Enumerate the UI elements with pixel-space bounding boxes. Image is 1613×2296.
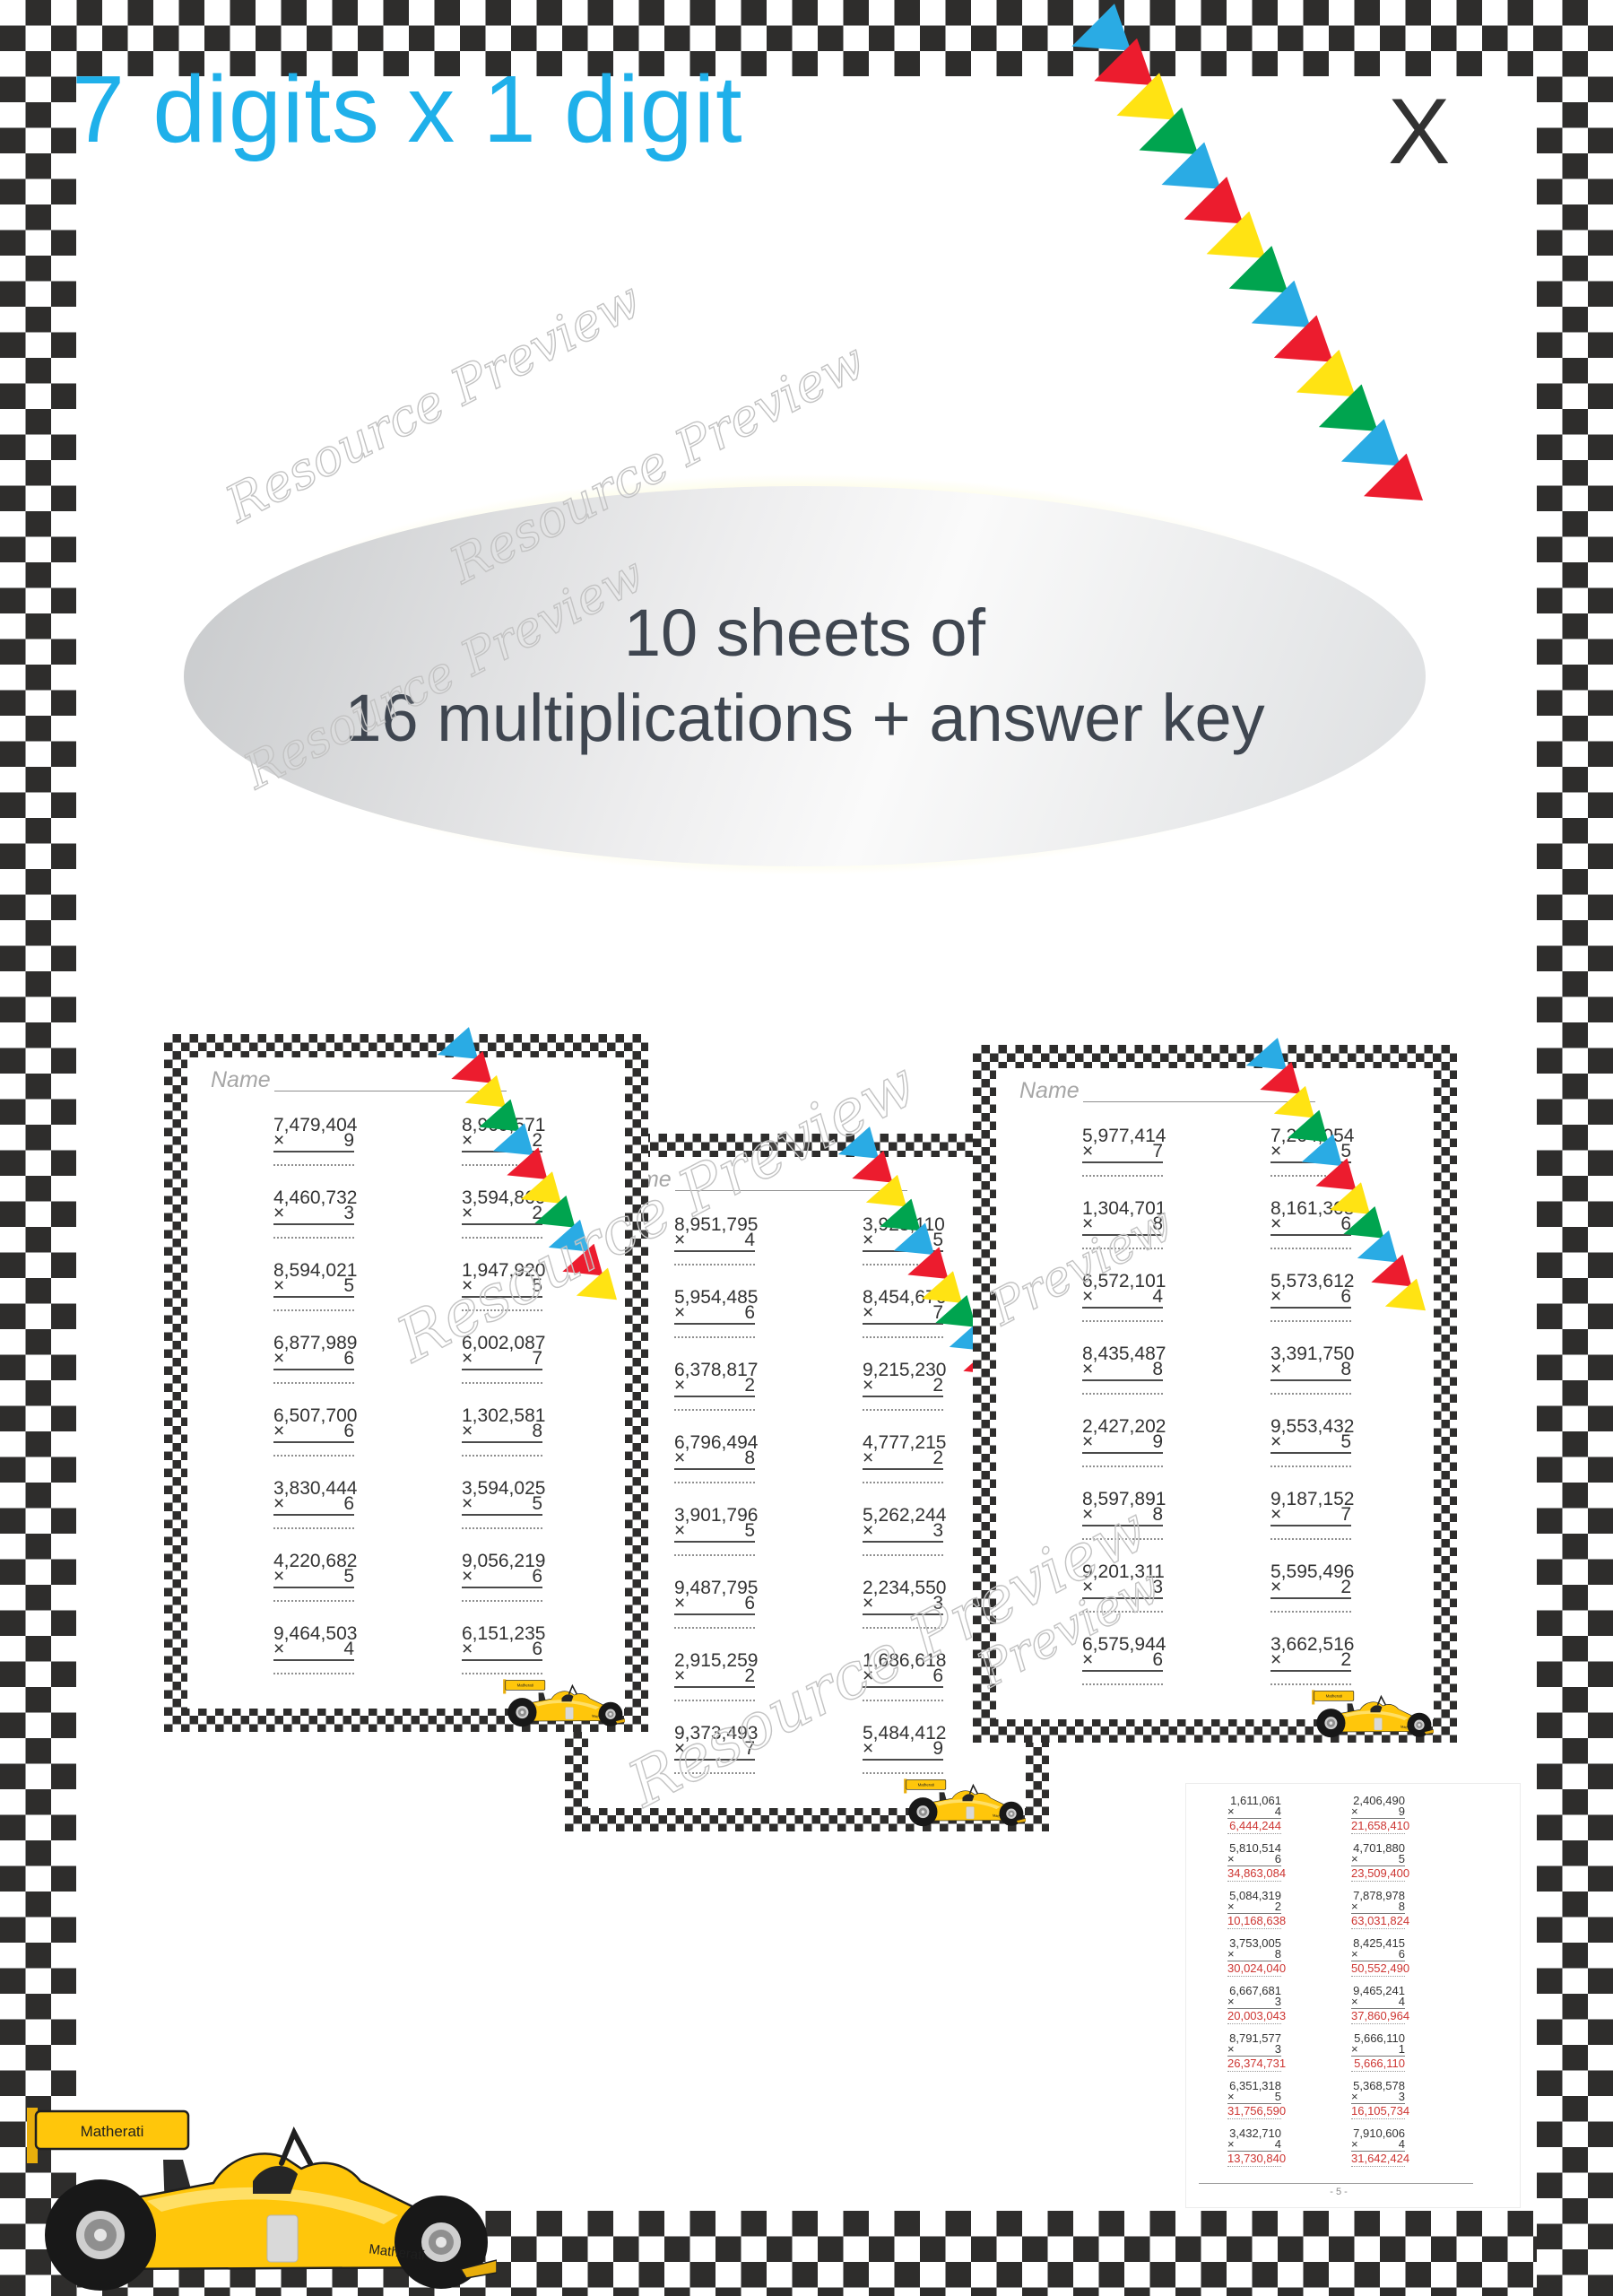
multiplier: 6	[932, 1669, 943, 1683]
multiply-sign: ×	[273, 1279, 284, 1293]
multiplier-row: × 6	[1082, 1653, 1163, 1672]
page-number: - 5 -	[1186, 2187, 1491, 2197]
multiply-sign: ×	[1351, 2092, 1358, 2102]
multiplier: 2	[744, 1378, 755, 1393]
multiplication-problem: 1,947,920 × 5	[462, 1262, 542, 1335]
answer-line	[863, 1554, 943, 1556]
multiplier-row: × 3	[1082, 1580, 1163, 1599]
answer-value: 37,860,964	[1351, 2009, 1405, 2024]
multiplier: 5	[343, 1279, 354, 1293]
multiplier: 6	[744, 1596, 755, 1611]
answer-value: 6,444,244	[1227, 1819, 1281, 1834]
multiplicand: 4,460,732	[273, 1189, 354, 1206]
multiplier-row: × 8	[1082, 1362, 1163, 1381]
multiply-sign: ×	[1351, 1901, 1358, 1912]
multiply-sign: ×	[1082, 1217, 1093, 1231]
multiplier: 6	[343, 1497, 354, 1511]
multiplier-row: × 7	[1270, 1508, 1351, 1526]
answered-problem: 5,810,514 × 6 34,863,084	[1227, 1842, 1281, 1890]
multiply-sign: ×	[1082, 1653, 1093, 1667]
multiplicand: 4,777,215	[863, 1434, 943, 1451]
multiplicand: 9,553,432	[1270, 1418, 1351, 1435]
multiply-sign: ×	[674, 1596, 685, 1611]
answer-line	[1082, 1538, 1163, 1540]
answer-value: 5,666,110	[1351, 2057, 1405, 2072]
multiplication-problem: 5,595,496 × 2	[1270, 1563, 1351, 1636]
answer-value: 10,168,638	[1227, 1914, 1281, 1929]
answer-line	[1082, 1248, 1163, 1249]
multiplicand: 2,427,202	[1082, 1418, 1163, 1435]
multiplier: 2	[1275, 1901, 1281, 1912]
multiplication-problem: 5,262,244 × 3	[863, 1507, 943, 1579]
multiplicand: 6,796,494	[674, 1434, 755, 1451]
answer-value: 63,031,824	[1351, 1914, 1405, 1929]
multiply-sign: ×	[1351, 2139, 1358, 2150]
multiplication-problem: 3,391,750 × 8	[1270, 1345, 1351, 1418]
multiplication-problem: 2,427,202 × 9	[1082, 1418, 1163, 1491]
multiplication-problem: 9,187,152 × 7	[1270, 1491, 1351, 1563]
multiplier: 9	[343, 1134, 354, 1148]
multiply-sign: ×	[462, 1497, 473, 1511]
multiplier: 4	[1152, 1290, 1163, 1304]
answer-line	[1270, 1611, 1351, 1613]
multiplicand: 5,595,496	[1270, 1563, 1351, 1580]
answer-line	[674, 1772, 755, 1774]
answer-value: 16,105,734	[1351, 2104, 1405, 2119]
multiplier: 6	[1399, 1949, 1405, 1960]
multiply-sign: ×	[273, 1206, 284, 1221]
multiplier: 6	[532, 1570, 542, 1584]
multiplicand: 5,262,244	[863, 1507, 943, 1524]
multiplication-problem: 6,796,494 × 8	[674, 1434, 755, 1507]
multiply-sign: ×	[1270, 1580, 1281, 1595]
multiplicand: 6,002,087	[462, 1335, 542, 1352]
multiply-sign: ×	[1082, 1362, 1093, 1377]
multiplicand: 6,667,681	[1227, 1985, 1281, 1996]
multiplicand: 6,575,944	[1082, 1636, 1163, 1653]
multiplicand: 9,373,493	[674, 1725, 755, 1742]
multiplicand: 7,479,404	[273, 1117, 354, 1134]
answer-line	[674, 1409, 755, 1411]
worksheet-page: Name 5,977,414 × 7 7,264,054	[996, 1068, 1434, 1719]
answered-problem: 7,878,978 × 8 63,031,824	[1351, 1890, 1405, 1937]
multiplier: 5	[744, 1524, 755, 1538]
multiply-sign: ×	[674, 1233, 685, 1248]
multiplier-row: × 2	[1270, 1580, 1351, 1599]
multiply-sign: ×	[1227, 2092, 1235, 2102]
multiplier-row: × 2	[863, 1451, 943, 1470]
answer-value: 13,730,840	[1227, 2152, 1281, 2167]
multiplication-problem: 6,507,700 × 6	[273, 1407, 354, 1480]
multiplication-problem: 8,951,795 × 4	[674, 1216, 755, 1289]
multiplication-problem: 9,464,503 × 4	[273, 1625, 354, 1698]
multiplicand: 6,877,989	[273, 1335, 354, 1352]
multiplier-row: × 6	[273, 1352, 354, 1370]
multiply-sign: ×	[1351, 1949, 1358, 1960]
multiplicand: 5,368,578	[1351, 2080, 1405, 2092]
multiply-sign: ×	[674, 1306, 685, 1320]
race-car-illustration	[13, 2090, 497, 2296]
answer-line	[674, 1554, 755, 1556]
multiplier: 8	[1399, 1901, 1405, 1912]
multiplication-problem: 8,435,487 × 8	[1082, 1345, 1163, 1418]
multiplication-problem: 3,830,444 × 6	[273, 1480, 354, 1552]
answer-key-grid: 1,611,061 × 4 6,444,244 2,406,490 × 9 21…	[1227, 1795, 1405, 2175]
answer-line	[674, 1336, 755, 1338]
multiply-sign: ×	[674, 1378, 685, 1393]
answer-line	[462, 1600, 542, 1602]
multiplier: 4	[1399, 2139, 1405, 2150]
answered-problem: 7,910,606 × 4 31,642,424	[1351, 2127, 1405, 2175]
multiplier-row: × 5	[273, 1279, 354, 1298]
multiplier: 8	[744, 1451, 755, 1465]
race-car-icon	[900, 1774, 1026, 1828]
multiply-sign: ×	[863, 1669, 873, 1683]
multiplication-problem: 4,220,682 × 5	[273, 1552, 354, 1625]
name-label: Name	[211, 1068, 271, 1091]
multiplier: 5	[532, 1497, 542, 1511]
multiply-sign: ×	[863, 1306, 873, 1320]
multiplier: 2	[1340, 1653, 1351, 1667]
multiplication-problem: 5,954,485 × 6	[674, 1289, 755, 1361]
answer-line	[863, 1627, 943, 1629]
answer-line	[674, 1264, 755, 1265]
multiply-sign: ×	[273, 1134, 284, 1148]
multiplier: 4	[1275, 2139, 1281, 2150]
answer-value: 26,374,731	[1227, 2057, 1281, 2072]
multiply-sign: ×	[273, 1570, 284, 1584]
multiply-sign: ×	[674, 1524, 685, 1538]
multiplicand: 4,701,880	[1351, 1842, 1405, 1854]
multiplier: 5	[532, 1279, 542, 1293]
multiplication-problem: 9,553,432 × 5	[1270, 1418, 1351, 1491]
badge-oval: 10 sheets of 16 multiplications + answer…	[184, 486, 1426, 866]
multiplier-row: × 6	[1351, 1949, 1405, 1961]
multiplier: 8	[1152, 1508, 1163, 1522]
multiplicand: 1,947,920	[462, 1262, 542, 1279]
multiplier-row: × 7	[462, 1352, 542, 1370]
answer-line	[1082, 1683, 1163, 1685]
answer-line	[273, 1309, 354, 1311]
worksheet-preview-3: Name 5,977,414 × 7 7,264,054	[973, 1045, 1457, 1743]
multiplier: 5	[1275, 2092, 1281, 2102]
multiplier: 5	[343, 1570, 354, 1584]
multiplier: 4	[744, 1233, 755, 1248]
multiply-sign: ×	[273, 1642, 284, 1657]
multiplier-row: × 6	[674, 1596, 755, 1615]
multiplier: 2	[932, 1378, 943, 1393]
answered-problem: 3,753,005 × 8 30,024,040	[1227, 1937, 1281, 1985]
answer-line	[273, 1455, 354, 1457]
multiplier-row: × 6	[273, 1497, 354, 1516]
multiplier: 8	[1340, 1362, 1351, 1377]
multiplication-problem: 7,479,404 × 9	[273, 1117, 354, 1189]
multiplier-row: × 4	[1351, 2139, 1405, 2152]
multiplicand: 7,910,606	[1351, 2127, 1405, 2139]
multiplicand: 3,830,444	[273, 1480, 354, 1497]
multiplier-row: × 3	[863, 1596, 943, 1615]
answer-line	[863, 1336, 943, 1338]
answer-line	[462, 1382, 542, 1384]
multiplication-problem: 2,234,550 × 3	[863, 1579, 943, 1652]
multiplication-problem: 6,572,101 × 4	[1082, 1273, 1163, 1345]
multiplicand: 8,791,577	[1227, 2032, 1281, 2044]
answer-value: 23,509,400	[1351, 1866, 1405, 1882]
multiply-sign: ×	[863, 1233, 873, 1248]
answer-line	[273, 1673, 354, 1674]
answer-line	[863, 1409, 943, 1411]
multiplier-row: × 6	[674, 1306, 755, 1325]
multiplier-row: × 5	[1351, 1854, 1405, 1866]
multiply-sign: ×	[1227, 1996, 1235, 2007]
multiplicand: 3,901,796	[674, 1507, 755, 1524]
multiplier: 6	[744, 1306, 755, 1320]
multiplier: 1	[1399, 2044, 1405, 2055]
multiplier-row: × 7	[674, 1742, 755, 1761]
multiply-sign: ×	[1270, 1508, 1281, 1522]
multiply-sign: ×	[1270, 1435, 1281, 1449]
answer-line	[273, 1527, 354, 1529]
multiply-sign: ×	[1270, 1217, 1281, 1231]
race-car-icon	[1308, 1685, 1434, 1739]
multiplier: 5	[1399, 1854, 1405, 1865]
multiplier-row: × 3	[1227, 1996, 1281, 2009]
multiplication-problem: 4,777,215 × 2	[863, 1434, 943, 1507]
answer-line	[1270, 1248, 1351, 1249]
answer-line	[1082, 1465, 1163, 1467]
multiply-sign: ×	[462, 1134, 473, 1148]
answer-line	[1082, 1320, 1163, 1322]
answer-line	[674, 1482, 755, 1483]
multiplicand: 2,234,550	[863, 1579, 943, 1596]
multiply-sign: ×	[1227, 1949, 1235, 1960]
answer-line	[462, 1527, 542, 1529]
badge-line-1: 10 sheets of	[624, 591, 985, 676]
answer-value: 20,003,043	[1227, 2009, 1281, 2024]
multiplication-problem: 5,977,414 × 7	[1082, 1127, 1163, 1200]
worksheet-page: Name 7,479,404 × 9 8,969,571	[187, 1057, 625, 1709]
multiply-sign: ×	[273, 1497, 284, 1511]
race-car-icon	[499, 1674, 625, 1728]
multiplicand: 9,215,230	[863, 1361, 943, 1378]
multiplier: 3	[1399, 2092, 1405, 2102]
multiplier: 6	[1340, 1290, 1351, 1304]
multiplier: 9	[932, 1742, 943, 1756]
multiplier-row: × 6	[462, 1642, 542, 1661]
multiply-sign: ×	[1227, 2044, 1235, 2055]
multiplicand: 9,487,795	[674, 1579, 755, 1596]
multiply-sign: ×	[1227, 1854, 1235, 1865]
multiplication-problem: 8,594,021 × 5	[273, 1262, 354, 1335]
multiplicand: 1,686,618	[863, 1652, 943, 1669]
multiply-sign: ×	[462, 1352, 473, 1366]
answer-value: 21,658,410	[1351, 1819, 1405, 1834]
problem-grid: 5,977,414 × 7 7,264,054 × 5	[1082, 1127, 1351, 1709]
multiplier-row: × 2	[863, 1378, 943, 1397]
answer-line	[462, 1237, 542, 1239]
multiplier: 3	[1275, 1996, 1281, 2007]
multiplicand: 2,406,490	[1351, 1795, 1405, 1806]
answer-line	[674, 1627, 755, 1629]
multiplicand: 8,951,795	[674, 1216, 755, 1233]
multiply-sign: ×	[1270, 1144, 1281, 1159]
answered-problem: 8,791,577 × 3 26,374,731	[1227, 2032, 1281, 2080]
multiply-sign: ×	[462, 1642, 473, 1657]
multiplicand: 8,435,487	[1082, 1345, 1163, 1362]
multiplier-row: × 2	[674, 1669, 755, 1688]
multiplicand: 4,220,682	[273, 1552, 354, 1570]
multiplier: 3	[932, 1596, 943, 1611]
answer-line	[462, 1455, 542, 1457]
multiply-sign: ×	[1351, 1996, 1358, 2007]
answered-problem: 2,406,490 × 9 21,658,410	[1351, 1795, 1405, 1842]
answer-line	[273, 1382, 354, 1384]
multiplicand: 8,597,891	[1082, 1491, 1163, 1508]
multiplier-row: × 4	[1351, 1996, 1405, 2009]
answer-key-preview: 1,611,061 × 4 6,444,244 2,406,490 × 9 21…	[1185, 1783, 1521, 2208]
worksheet-preview-poster: 7 digits x 1 digit X 10 sheets of 16 mul…	[0, 0, 1613, 2296]
corner-letter-x: X	[1388, 79, 1450, 186]
multiplication-problem: 6,002,087 × 7	[462, 1335, 542, 1407]
worksheet-page: Name 8,951,795 × 4 3,923,110	[588, 1157, 1026, 1808]
multiplicand: 5,977,414	[1082, 1127, 1163, 1144]
multiplier: 8	[1275, 1949, 1281, 1960]
multiplicand: 6,378,817	[674, 1361, 755, 1378]
multiplier: 6	[1275, 1854, 1281, 1865]
multiply-sign: ×	[1227, 1901, 1235, 1912]
multiplicand: 3,594,025	[462, 1480, 542, 1497]
problem-grid: 7,479,404 × 9 8,969,571 × 2	[273, 1117, 542, 1698]
multiplier: 8	[1152, 1362, 1163, 1377]
multiply-sign: ×	[1082, 1508, 1093, 1522]
answer-line	[1082, 1611, 1163, 1613]
answered-problem: 4,701,880 × 5 23,509,400	[1351, 1842, 1405, 1890]
multiplicand: 9,187,152	[1270, 1491, 1351, 1508]
answer-value: 50,552,490	[1351, 1961, 1405, 1977]
multiplier-row: × 5	[462, 1497, 542, 1516]
multiplier-row: × 5	[273, 1570, 354, 1588]
multiplier-row: × 5	[674, 1524, 755, 1543]
multiplication-problem: 9,201,311 × 3	[1082, 1563, 1163, 1636]
multiply-sign: ×	[1227, 1806, 1235, 1817]
multiplication-problem: 8,597,891 × 8	[1082, 1491, 1163, 1563]
multiplier: 8	[532, 1424, 542, 1439]
answer-line	[1270, 1320, 1351, 1322]
multiplier: 7	[1152, 1144, 1163, 1159]
multiplier-row: × 6	[863, 1669, 943, 1688]
multiplicand: 5,573,612	[1270, 1273, 1351, 1290]
multiplier-row: × 4	[674, 1233, 755, 1252]
answer-line	[863, 1482, 943, 1483]
answered-problem: 8,425,415 × 6 50,552,490	[1351, 1937, 1405, 1985]
multiply-sign: ×	[674, 1669, 685, 1683]
answered-problem: 5,666,110 × 1 5,666,110	[1351, 2032, 1405, 2080]
multiplier-row: × 1	[1351, 2044, 1405, 2057]
multiplicand: 3,753,005	[1227, 1937, 1281, 1949]
multiplication-problem: 9,487,795 × 6	[674, 1579, 755, 1652]
answer-line	[273, 1600, 354, 1602]
answer-line	[1082, 1393, 1163, 1395]
multiplier-row: × 2	[1270, 1653, 1351, 1672]
multiplier: 7	[1340, 1508, 1351, 1522]
multiply-sign: ×	[1227, 2139, 1235, 2150]
multiplier: 2	[932, 1451, 943, 1465]
multiplication-problem: 9,056,219 × 6	[462, 1552, 542, 1625]
multiplication-problem: 1,302,581 × 8	[462, 1407, 542, 1480]
answered-problem: 5,368,578 × 3 16,105,734	[1351, 2080, 1405, 2127]
multiply-sign: ×	[863, 1596, 873, 1611]
multiplicand: 1,304,701	[1082, 1200, 1163, 1217]
multiplier-row: × 3	[273, 1206, 354, 1225]
multiplier-row: × 2	[1227, 1901, 1281, 1914]
multiplicand: 8,594,021	[273, 1262, 354, 1279]
multiplier: 9	[1399, 1806, 1405, 1817]
answered-problem: 3,432,710 × 4 13,730,840	[1227, 2127, 1281, 2175]
multiplicand: 1,302,581	[462, 1407, 542, 1424]
multiply-sign: ×	[1351, 1854, 1358, 1865]
multiplier-row: × 2	[674, 1378, 755, 1397]
answer-value: 31,756,590	[1227, 2104, 1281, 2119]
multiplier: 7	[744, 1742, 755, 1756]
answer-line	[863, 1700, 943, 1701]
multiplicand: 5,666,110	[1351, 2032, 1405, 2044]
multiplicand: 9,201,311	[1082, 1563, 1163, 1580]
multiplier: 2	[1340, 1580, 1351, 1595]
multiplier: 8	[1152, 1217, 1163, 1231]
multiplication-problem: 9,373,493 × 7	[674, 1725, 755, 1797]
multiplication-problem: 1,304,701 × 8	[1082, 1200, 1163, 1273]
multiplier-row: × 8	[462, 1424, 542, 1443]
multiplicand: 5,084,319	[1227, 1890, 1281, 1901]
multiplicand: 1,611,061	[1227, 1795, 1281, 1806]
multiplier-row: × 3	[1351, 2092, 1405, 2104]
multiplicand: 2,915,259	[674, 1652, 755, 1669]
multiplicand: 5,810,514	[1227, 1842, 1281, 1854]
multiplier-row: × 6	[1227, 1854, 1281, 1866]
multiplier-row: × 6	[1270, 1290, 1351, 1309]
answered-problem: 1,611,061 × 4 6,444,244	[1227, 1795, 1281, 1842]
multiply-sign: ×	[1270, 1653, 1281, 1667]
footer-rule	[1199, 2183, 1473, 2184]
multiplier: 3	[343, 1206, 354, 1221]
multiplicand: 9,464,503	[273, 1625, 354, 1642]
multiplicand: 5,484,412	[863, 1725, 943, 1742]
problem-grid: 8,951,795 × 4 3,923,110 × 5	[674, 1216, 943, 1797]
checkered-border-left	[0, 0, 76, 2296]
answered-problem: 6,667,681 × 3 20,003,043	[1227, 1985, 1281, 2032]
worksheet-preview-1: Name 7,479,404 × 9 8,969,571	[164, 1034, 648, 1732]
multiplicand: 3,662,516	[1270, 1636, 1351, 1653]
multiplier: 6	[532, 1642, 542, 1657]
multiplier-row: × 7	[1082, 1144, 1163, 1163]
multiply-sign: ×	[1351, 1806, 1358, 1817]
multiplier: 3	[932, 1524, 943, 1538]
multiplication-problem: 6,378,817 × 2	[674, 1361, 755, 1434]
multiplier: 7	[532, 1352, 542, 1366]
multiply-sign: ×	[1270, 1362, 1281, 1377]
answer-line	[1082, 1175, 1163, 1177]
multiply-sign: ×	[462, 1424, 473, 1439]
multiply-sign: ×	[1082, 1144, 1093, 1159]
multiply-sign: ×	[863, 1451, 873, 1465]
multiplier-row: × 5	[462, 1279, 542, 1298]
multiplicand: 9,056,219	[462, 1552, 542, 1570]
multiplier: 6	[343, 1424, 354, 1439]
multiply-sign: ×	[462, 1206, 473, 1221]
multiplicand: 7,878,978	[1351, 1890, 1405, 1901]
multiplication-problem: 9,215,230 × 2	[863, 1361, 943, 1434]
multiplier-row: × 6	[273, 1424, 354, 1443]
